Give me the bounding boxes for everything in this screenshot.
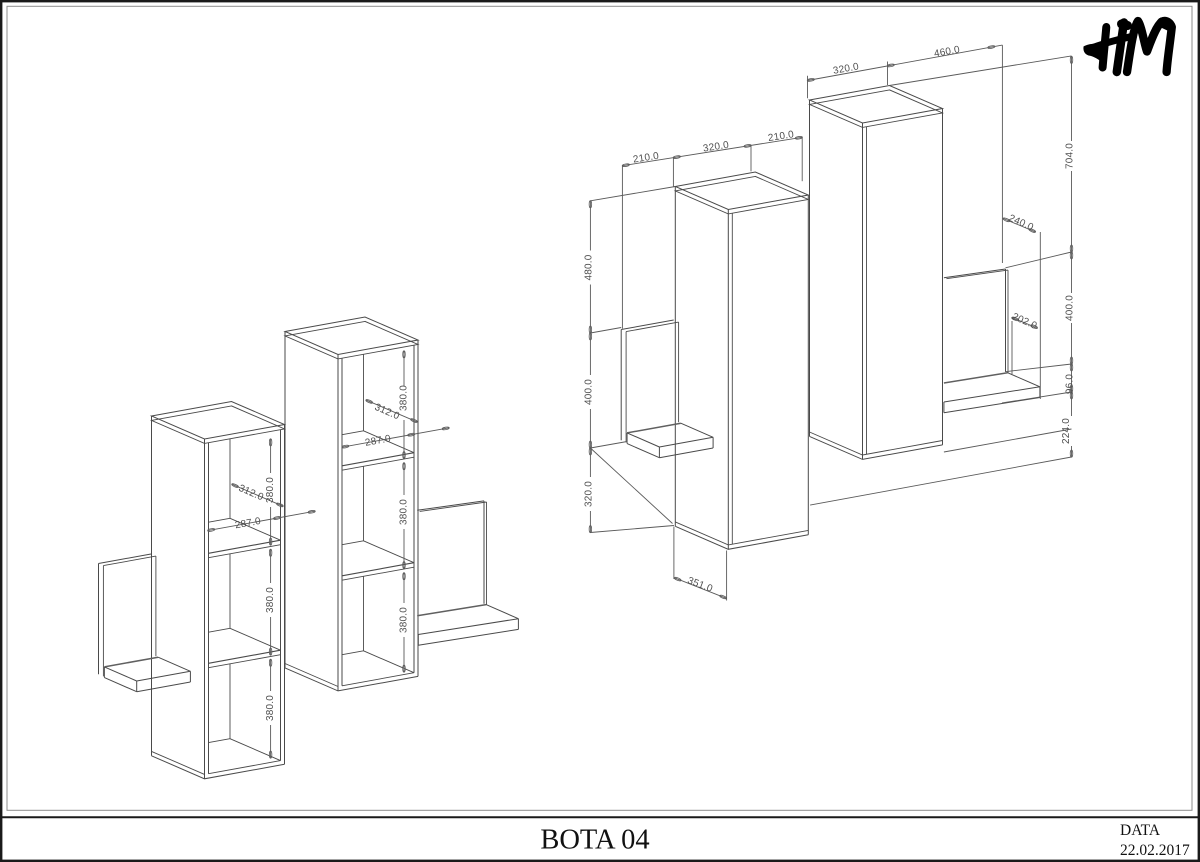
svg-text:320.0: 320.0 (584, 481, 595, 507)
svg-text:380.0: 380.0 (265, 695, 276, 721)
svg-text:480.0: 480.0 (584, 254, 595, 280)
svg-text:704.0: 704.0 (1065, 143, 1076, 169)
svg-text:380.0: 380.0 (399, 499, 410, 525)
svg-text:380.0: 380.0 (265, 587, 276, 613)
svg-text:DATA: DATA (1120, 822, 1161, 839)
svg-text:22.02.2017: 22.02.2017 (1120, 842, 1190, 859)
svg-text:400.0: 400.0 (1065, 295, 1076, 321)
svg-text:400.0: 400.0 (584, 379, 595, 405)
svg-text:380.0: 380.0 (265, 477, 276, 503)
svg-text:96.0: 96.0 (1065, 374, 1076, 395)
svg-text:BOTA 04: BOTA 04 (540, 825, 649, 856)
svg-text:380.0: 380.0 (399, 385, 410, 411)
svg-text:380.0: 380.0 (399, 607, 410, 633)
